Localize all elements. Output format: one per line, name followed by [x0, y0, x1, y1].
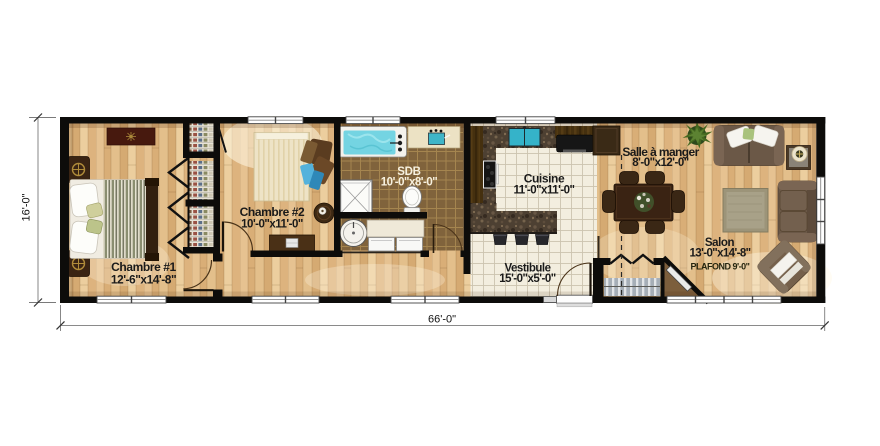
svg-text:66'-0": 66'-0" — [428, 314, 456, 326]
svg-text:12'-6"x14'-8": 12'-6"x14'-8" — [111, 273, 176, 287]
svg-text:PLAFOND 9'-0": PLAFOND 9'-0" — [691, 262, 750, 272]
svg-text:15'-0"x5'-0": 15'-0"x5'-0" — [499, 273, 555, 285]
svg-text:16'-0": 16'-0" — [21, 193, 33, 221]
svg-text:10'-0"x8'-0": 10'-0"x8'-0" — [381, 177, 437, 189]
svg-text:13'-0"x14'-8": 13'-0"x14'-8" — [689, 248, 750, 260]
svg-text:10'-0"x11'-0": 10'-0"x11'-0" — [241, 219, 303, 231]
svg-text:Chambre #2: Chambre #2 — [240, 205, 305, 219]
svg-text:8'-0"x12'-0": 8'-0"x12'-0" — [632, 157, 688, 169]
svg-text:Cuisine: Cuisine — [524, 172, 565, 186]
svg-text:11'-0"x11'-0": 11'-0"x11'-0" — [513, 185, 574, 197]
